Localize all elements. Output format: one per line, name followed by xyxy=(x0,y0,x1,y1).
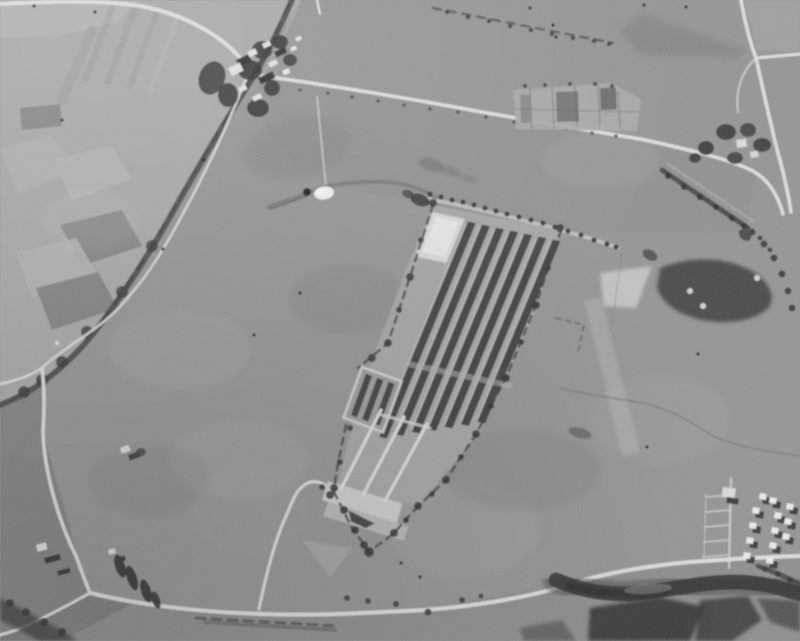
aerial-photo-frame: Monochrome vertical aerial reconnaissanc… xyxy=(0,0,800,641)
aerial-photo xyxy=(0,0,800,641)
film-grain-overlay xyxy=(0,0,800,641)
